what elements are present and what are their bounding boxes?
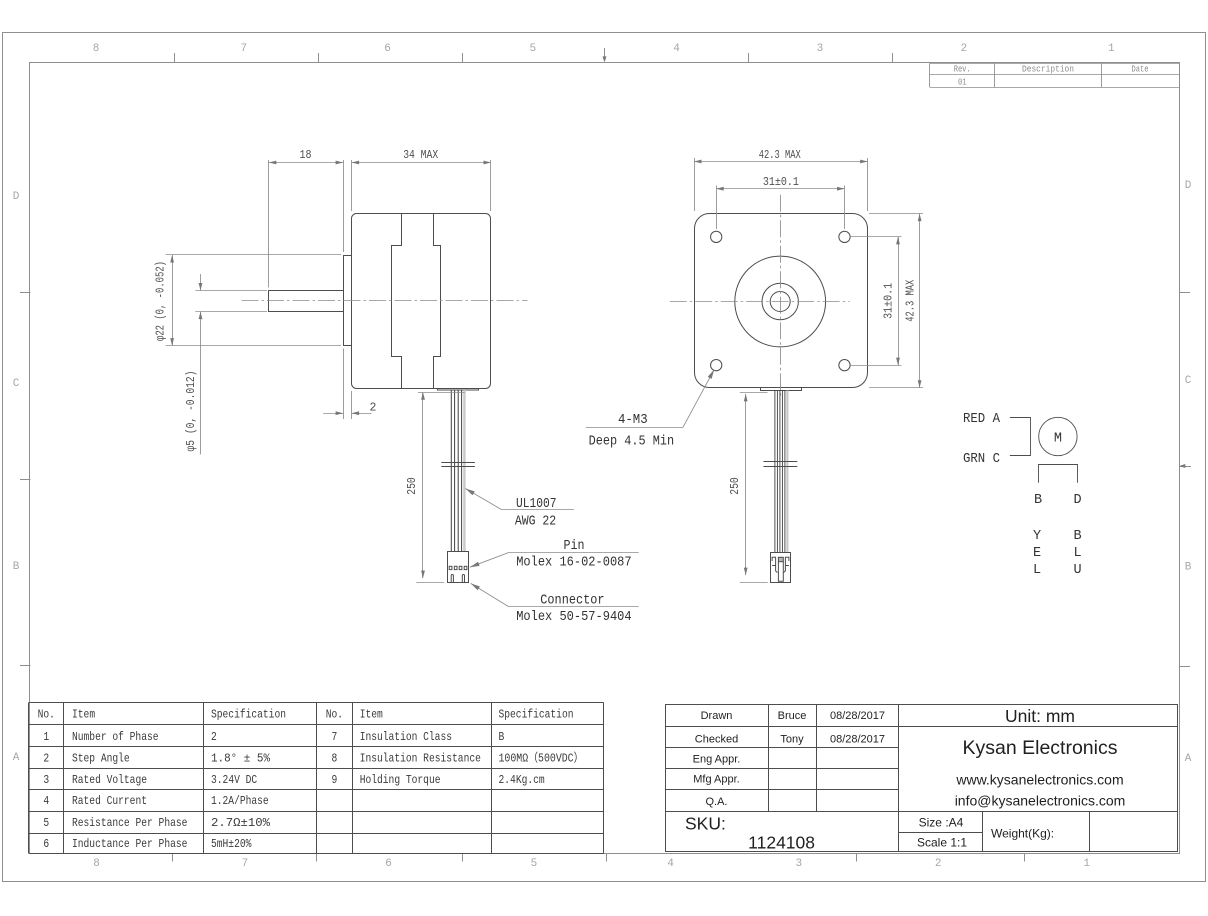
svg-text:3: 3 (43, 773, 49, 787)
svg-text:3: 3 (817, 43, 824, 55)
svg-text:31±0.1: 31±0.1 (883, 283, 896, 319)
svg-text:Y: Y (1033, 529, 1041, 544)
svg-text:UL1007: UL1007 (516, 497, 557, 512)
svg-text:2: 2 (369, 401, 376, 414)
svg-text:B: B (1034, 493, 1042, 508)
svg-text:01: 01 (958, 76, 967, 87)
svg-text:8: 8 (93, 43, 100, 55)
svg-text:AWG 22: AWG 22 (515, 515, 556, 530)
svg-text:Rated Voltage: Rated Voltage (72, 773, 147, 787)
svg-text:2: 2 (935, 858, 942, 870)
svg-text:Date: Date (1132, 64, 1149, 75)
svg-text:No.: No. (326, 708, 343, 722)
svg-text:Insulation Class: Insulation Class (360, 730, 452, 744)
svg-text:B: B (13, 561, 20, 573)
svg-text:A: A (1185, 753, 1192, 765)
svg-text:Checked: Checked (695, 734, 738, 746)
svg-text:www.kysanelectronics.com: www.kysanelectronics.com (955, 772, 1123, 788)
svg-text:250: 250 (729, 477, 742, 495)
svg-text:Number of Phase: Number of Phase (72, 730, 159, 744)
svg-text:φ22 (0, -0.052): φ22 (0, -0.052) (155, 261, 168, 341)
svg-text:100MΩ（500VDC）: 100MΩ（500VDC） (499, 751, 584, 766)
svg-text:Description: Description (1022, 64, 1074, 75)
svg-text:E: E (1033, 546, 1041, 561)
svg-text:A: A (13, 752, 20, 764)
svg-text:8: 8 (93, 858, 100, 870)
svg-text:2: 2 (43, 752, 49, 766)
svg-text:Kysan Electronics: Kysan Electronics (963, 737, 1118, 759)
svg-text:7: 7 (240, 43, 247, 55)
svg-text:Connector: Connector (540, 593, 604, 608)
svg-text:C: C (13, 378, 20, 390)
svg-text:Molex 50-57-9404: Molex 50-57-9404 (516, 610, 631, 625)
svg-text:Specification: Specification (499, 708, 574, 722)
svg-text:6: 6 (385, 858, 392, 870)
svg-text:3: 3 (795, 858, 802, 870)
svg-text:Drawn: Drawn (701, 710, 733, 722)
svg-text:5: 5 (43, 816, 49, 830)
svg-text:1: 1 (1083, 858, 1090, 870)
svg-text:4: 4 (43, 794, 49, 808)
svg-text:Scale 1:1: Scale 1:1 (917, 836, 967, 850)
svg-text:Eng Appr.: Eng Appr. (693, 754, 741, 766)
svg-text:1.8° ± 5%: 1.8° ± 5% (211, 752, 271, 766)
svg-text:info@kysanelectronics.com: info@kysanelectronics.com (955, 793, 1126, 809)
svg-text:SKU:: SKU: (685, 814, 726, 834)
svg-text:4: 4 (667, 858, 674, 870)
svg-text:2: 2 (211, 730, 217, 744)
svg-text:Molex 16-02-0087: Molex 16-02-0087 (516, 556, 631, 571)
svg-text:Rev.: Rev. (954, 64, 971, 75)
svg-text:Q.A.: Q.A. (705, 796, 727, 808)
svg-text:L: L (1033, 563, 1041, 578)
svg-text:1.2A/Phase: 1.2A/Phase (211, 794, 269, 808)
svg-text:Mfg Appr.: Mfg Appr. (693, 774, 739, 786)
svg-text:Tony: Tony (780, 734, 804, 746)
svg-text:6: 6 (43, 837, 49, 851)
svg-text:3.24V DC: 3.24V DC (211, 773, 257, 787)
svg-text:34 MAX: 34 MAX (403, 149, 438, 162)
svg-text:Unit: mm: Unit: mm (1005, 706, 1075, 726)
svg-text:Rated Current: Rated Current (72, 794, 147, 808)
svg-text:Item: Item (360, 708, 383, 722)
svg-text:42.3 MAX: 42.3 MAX (759, 149, 801, 162)
svg-text:B: B (499, 730, 505, 744)
svg-text:No.: No. (38, 708, 55, 722)
svg-text:Insulation Resistance: Insulation Resistance (360, 752, 481, 766)
svg-text:Weight(Kg):: Weight(Kg): (991, 827, 1054, 841)
svg-text:Inductance Per Phase: Inductance Per Phase (72, 837, 187, 851)
svg-text:U: U (1073, 563, 1081, 578)
svg-text:2.4Kg.cm: 2.4Kg.cm (499, 773, 545, 787)
svg-text:7: 7 (242, 858, 249, 870)
svg-text:08/28/2017: 08/28/2017 (830, 734, 885, 746)
svg-text:31±0.1: 31±0.1 (763, 176, 799, 189)
svg-text:7: 7 (332, 730, 338, 744)
svg-text:1: 1 (1108, 43, 1115, 55)
svg-text:D: D (1185, 180, 1192, 192)
svg-text:Bruce: Bruce (778, 710, 807, 722)
svg-text:42.3 MAX: 42.3 MAX (905, 280, 918, 322)
svg-text:5mH±20%: 5mH±20% (211, 837, 252, 851)
svg-text:5: 5 (531, 858, 538, 870)
svg-text:2.7Ω±10%: 2.7Ω±10% (211, 816, 271, 830)
svg-text:1: 1 (43, 730, 49, 744)
svg-text:RED A: RED A (963, 412, 1001, 427)
svg-text:D: D (1073, 493, 1081, 508)
svg-text:φ5 (0, -0.012): φ5 (0, -0.012) (185, 371, 198, 452)
svg-text:9: 9 (332, 773, 338, 787)
svg-text:C: C (1185, 375, 1192, 387)
svg-text:Size :A4: Size :A4 (919, 816, 964, 830)
svg-text:D: D (13, 191, 20, 203)
svg-text:Deep 4.5 Min: Deep 4.5 Min (589, 435, 675, 450)
svg-text:Pin: Pin (564, 539, 585, 554)
svg-text:Step Angle: Step Angle (72, 752, 130, 766)
svg-text:M: M (1054, 432, 1062, 447)
svg-text:18: 18 (300, 149, 312, 162)
svg-text:4-M3: 4-M3 (618, 413, 648, 428)
svg-text:2: 2 (961, 43, 968, 55)
svg-text:6: 6 (384, 43, 391, 55)
svg-text:B: B (1073, 529, 1081, 544)
svg-text:08/28/2017: 08/28/2017 (830, 710, 885, 722)
svg-text:250: 250 (406, 477, 419, 495)
svg-text:Holding Torque: Holding Torque (360, 773, 441, 787)
svg-text:8: 8 (332, 752, 338, 766)
svg-text:GRN C: GRN C (963, 452, 1000, 467)
svg-text:5: 5 (529, 43, 536, 55)
svg-text:Resistance Per Phase: Resistance Per Phase (72, 816, 187, 830)
svg-text:L: L (1073, 546, 1081, 561)
svg-text:4: 4 (673, 43, 680, 55)
svg-text:Item: Item (72, 708, 95, 722)
svg-text:B: B (1185, 562, 1192, 574)
svg-text:1124108: 1124108 (748, 833, 815, 853)
svg-text:Specification: Specification (211, 708, 286, 722)
